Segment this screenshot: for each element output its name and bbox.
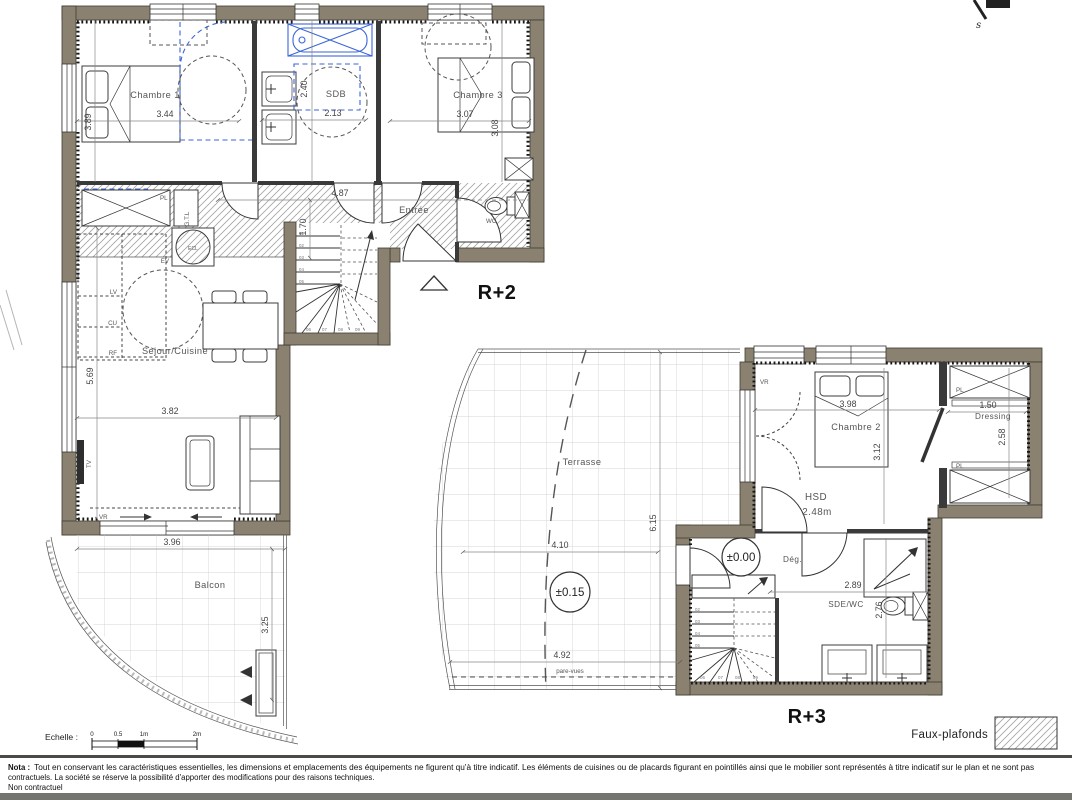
level-label-r3: R+3 (788, 706, 827, 728)
tag-rf: RF (109, 350, 117, 357)
dim-terrasse-depth: 6.15 (648, 514, 658, 531)
room-label-sdb: SDB (326, 89, 346, 99)
r2-balcon (46, 535, 298, 744)
dim-dressing-width: 1.50 (979, 400, 996, 410)
scale-tick-0: 0 (90, 731, 94, 738)
entrance-triangle-marker (421, 276, 447, 290)
dim-balcon-depth: 3.25 (260, 616, 270, 633)
label-hsd: HSD (805, 492, 827, 503)
washbasin-icon (877, 645, 927, 682)
level-label-r2: R+2 (478, 282, 517, 304)
dim-balcon-width: 3.96 (163, 537, 180, 547)
legend-hatch-swatch (995, 717, 1057, 749)
step-number: 03 (695, 619, 700, 624)
room-label-entree: Entrée (399, 205, 429, 215)
dim-chambre1-height: 3.89 (83, 113, 93, 130)
window-chambre2-left (740, 390, 755, 482)
bathtub-icon (288, 24, 372, 56)
separator-line (0, 755, 1072, 758)
tag-pl: PL (160, 195, 168, 202)
dim-chambre3-width: 3.07 (456, 109, 473, 119)
sliding-arrows (120, 514, 222, 521)
dim-sdb-width: 2.13 (324, 108, 341, 118)
tag-pl: PL (956, 387, 964, 394)
dim-terrasse-width2: 4.92 (553, 650, 570, 660)
dim-sdewc-height: 2.76 (874, 601, 884, 618)
step-number: 06 (700, 675, 705, 680)
tag-cu: CU (108, 320, 117, 327)
round-table-icon (123, 270, 203, 350)
dim-terrasse-width: 4.10 (551, 540, 568, 550)
room-label-degagement: Dég. (783, 555, 802, 564)
dim-entree-width: 4.87 (331, 188, 348, 198)
level-marker-terrasse: ±0.15 (550, 572, 590, 612)
shower-icon (864, 539, 926, 597)
tag-vr: VR (760, 379, 769, 386)
step-number: 05 (299, 279, 304, 284)
logo-letter: s (976, 20, 981, 31)
step-number: 09 (355, 327, 360, 332)
tag-lv: LV (110, 289, 118, 296)
logo-mark: s (974, 0, 1010, 31)
dim-dressing-height: 2.58 (997, 428, 1007, 445)
tag-gtl: G.T.L (184, 211, 191, 226)
floor-plan-drawing: 01 02 03 04 05 06 07 08 09 (0, 0, 1072, 800)
tag-tv: TV (86, 459, 93, 468)
bed-icon (82, 66, 180, 142)
r2-chambre1 (82, 20, 252, 189)
dim-chambre3-height: 3.08 (490, 119, 500, 136)
dim-sejour-width: 3.82 (161, 406, 178, 416)
duct-box (515, 192, 529, 218)
room-label-chambre3: Chambre 3 (453, 90, 503, 100)
dim-sejour-depth: 5.69 (85, 367, 95, 384)
window-chambre1-top (150, 4, 216, 20)
scale-tick-1m: 1m (140, 731, 149, 738)
step-number: 02 (695, 607, 700, 612)
room-label-sdewc: SDE/WC (828, 600, 863, 609)
tag-pl: PL (956, 463, 964, 470)
step-number: 06 (306, 327, 311, 332)
step-number: 03 (299, 255, 304, 260)
dim-chambre1-width: 3.44 (156, 109, 173, 119)
step-number: 04 (695, 631, 700, 636)
step-number: 08 (735, 675, 740, 680)
window-chambre2-top (816, 346, 886, 364)
floor-plan-page: 01 02 03 04 05 06 07 08 09 (0, 0, 1072, 800)
planter-icon (256, 650, 276, 716)
step-number: 05 (695, 643, 700, 648)
placard-box (82, 190, 170, 226)
washbasin-icon (262, 72, 296, 106)
window-sejour-left (62, 282, 76, 452)
r3-terrasse (420, 348, 745, 693)
dim-chambre2-width: 3.98 (839, 399, 856, 409)
window-sdb-top (295, 4, 319, 20)
level-value: ±0.00 (727, 552, 756, 564)
room-label-wc: WC (486, 218, 497, 225)
room-label-chambre1: Chambre 1 (130, 90, 180, 100)
legend-faux-plafonds: Faux-plafonds (911, 717, 1057, 749)
dim-sdewc-width: 2.89 (844, 580, 861, 590)
window-sejour-sliding (100, 521, 234, 535)
r3-plan: 02 03 04 05 06 07 08 09 ±0.15 ±0.00 Terr… (420, 346, 1042, 728)
label-pare-vues: pare-vues (556, 668, 584, 675)
nota-line3: Non contractuel (8, 783, 63, 792)
step-number: 08 (338, 327, 343, 332)
room-label-dressing: Dressing (975, 412, 1011, 421)
room-label-balcon: Balcon (195, 580, 226, 590)
step-number: 09 (753, 675, 758, 680)
level-value: ±0.15 (556, 587, 585, 599)
scale-tick-05: 0.5 (114, 731, 123, 738)
nota-line2: contractuels. La société se réserve la p… (8, 773, 374, 782)
window-chambre3-top (428, 4, 492, 20)
scale-tick-2m: 2m (193, 731, 202, 738)
shelf-box (505, 158, 533, 180)
level-marker-degagement: ±0.00 (722, 538, 760, 576)
r2-sejour-furniture (77, 270, 280, 521)
nota-line1: Nota :Tout en conservant les caractérist… (8, 763, 1034, 772)
tag-ecl: ECL (188, 246, 198, 252)
scale-label: Echelle : (45, 732, 78, 742)
scale-bar: Echelle : 0 0.5 1m 2m (45, 731, 201, 750)
tag-vr: VR (99, 514, 108, 521)
dim-sdb-height: 2.40 (299, 80, 309, 97)
dining-table-icon (203, 291, 278, 362)
duct-box (913, 592, 928, 620)
washbasin-icon (262, 110, 296, 144)
step-number: 07 (718, 675, 723, 680)
r2-sdb (262, 24, 372, 144)
step-number: 04 (299, 267, 304, 272)
step-number: 02 (299, 243, 304, 248)
bottom-bar (0, 793, 1072, 800)
label-hsd-value: 2.48m (802, 507, 831, 518)
tv-icon (77, 440, 84, 484)
window-r3-top-left (754, 346, 804, 364)
tag-ev: EV (161, 258, 170, 265)
legend-label: Faux-plafonds (911, 729, 988, 741)
placard-box (950, 470, 1030, 503)
sofa-icon (240, 416, 280, 514)
r2-stairs-icon: 01 02 03 04 05 06 07 08 09 (296, 225, 377, 333)
r3-stairs-icon: 02 03 04 05 06 07 08 09 (692, 575, 775, 682)
room-label-terrasse: Terrasse (563, 457, 602, 467)
step-number: 07 (322, 327, 327, 332)
dim-entree-height: 1.70 (298, 218, 308, 235)
window-chambre1-left (62, 64, 76, 132)
coffee-table-icon (186, 436, 214, 490)
dim-chambre2-height: 3.12 (872, 443, 882, 460)
washbasin-icon (822, 645, 872, 682)
room-label-sejour: Séjour/Cuisine (142, 346, 208, 356)
room-label-chambre2: Chambre 2 (831, 422, 881, 432)
